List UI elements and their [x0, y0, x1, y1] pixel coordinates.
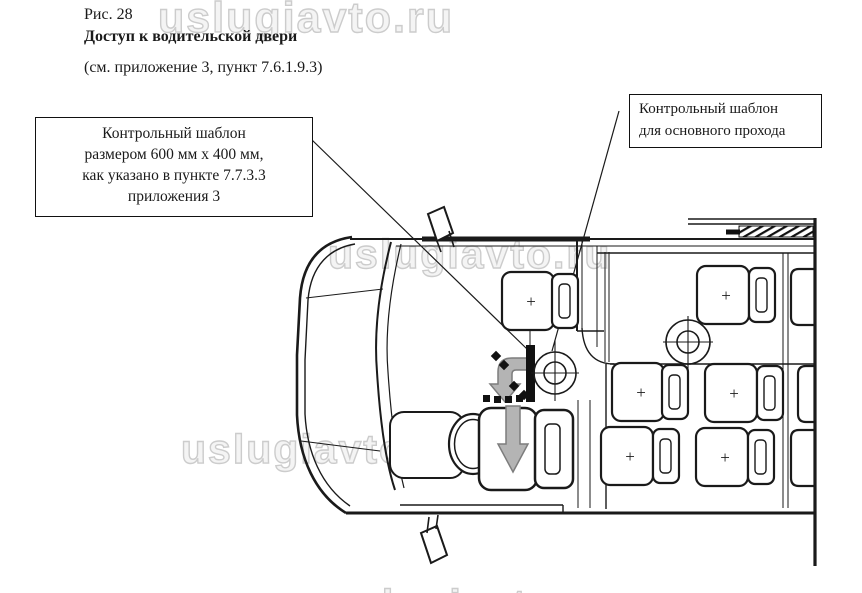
- callout-line: приложения 3: [36, 186, 312, 207]
- passenger-seat-partial: [791, 430, 815, 486]
- passenger-seat: [697, 266, 775, 324]
- passenger-seat-partial: [798, 366, 815, 422]
- callout-template-600x400: Контрольный шаблон размером 600 мм х 400…: [35, 117, 313, 217]
- passenger-seat-partial: [791, 269, 815, 325]
- seat-plus-mark: +: [729, 384, 739, 403]
- square-mark: [505, 396, 512, 403]
- hood-crease: [306, 289, 383, 298]
- seat-plus-mark: +: [720, 448, 730, 467]
- callout-aisle-template: Контрольный шаблон для основного прохода: [629, 94, 822, 148]
- seat-plus-mark: +: [625, 447, 635, 466]
- aisle-template-circle-front: [531, 340, 579, 401]
- passenger-seat: [601, 427, 679, 485]
- callout-line: для основного прохода: [639, 120, 821, 142]
- side-mirror-top: [428, 207, 454, 252]
- seat-plus-mark: +: [721, 286, 731, 305]
- passenger-seat: [696, 428, 774, 486]
- square-mark: [494, 396, 501, 403]
- front-passenger-seat: [502, 272, 578, 330]
- leader-line-left-callout: [311, 139, 527, 349]
- vehicle-top-view-diagram: + + + + + +: [0, 0, 862, 593]
- door-opening-hatch: [726, 226, 813, 237]
- figure-number: Рис. 28: [84, 6, 133, 24]
- passenger-seat: [612, 363, 688, 421]
- callout-line: размером 600 мм х 400 мм,: [36, 144, 312, 165]
- document-page: uslugiavto.ru uslugiavto.ru uslugiavto.r…: [0, 0, 862, 593]
- side-mirror-bottom: [421, 515, 447, 563]
- seat-plus-mark: +: [526, 292, 536, 311]
- square-mark: [483, 395, 490, 402]
- callout-line: Контрольный шаблон: [639, 98, 821, 120]
- passenger-seat: [705, 364, 783, 422]
- figure-reference: (см. приложение 3, пункт 7.6.1.9.3): [84, 59, 322, 77]
- seat-plus-mark: +: [636, 383, 646, 402]
- square-mark: [516, 395, 523, 402]
- diamond-mark: [491, 351, 501, 361]
- callout-line: как указано в пункте 7.7.3.3: [36, 165, 312, 186]
- callout-line: Контрольный шаблон: [36, 123, 312, 144]
- hood-crease: [301, 441, 380, 451]
- door-template-bar: [526, 331, 535, 402]
- figure-title: Доступ к водительской двери: [84, 28, 297, 46]
